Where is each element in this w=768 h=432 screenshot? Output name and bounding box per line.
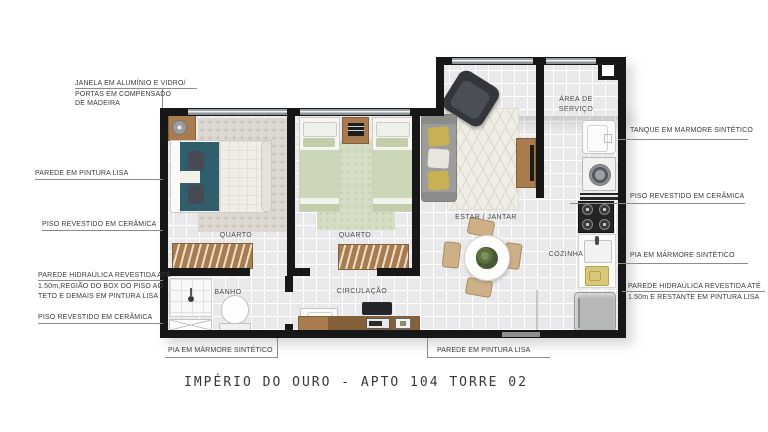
wall-left <box>160 108 168 338</box>
room-label-area-servico-2: SERVIÇO <box>546 106 606 114</box>
bedroom2-single-bed-right <box>372 117 413 212</box>
bedroom2-nightstand <box>342 117 369 144</box>
bedroom2-single-bed-left <box>299 117 340 212</box>
living-tv <box>530 145 534 181</box>
note-pia-right: PIA EM MÁRMORE SINTÉTICO <box>630 251 735 260</box>
wall-bottom <box>160 330 626 338</box>
wall-circulation-b <box>287 268 310 276</box>
note-piso-ceramica-left-2: PISO REVESTIDO EM CERÂMICA <box>38 313 152 322</box>
leader-piso-ceramica-left-2 <box>38 323 163 324</box>
window-bedroom2 <box>300 109 410 115</box>
wall-connector <box>436 57 444 116</box>
sofa-pillow-yellow-1 <box>427 126 450 147</box>
room-label-circulacao: CIRCULAÇÃO <box>319 288 405 296</box>
window-service <box>546 58 596 64</box>
kitchen-shelf <box>580 193 618 200</box>
note-janela-line3: DE MADEIRA <box>75 99 120 108</box>
leader-parede-pintura-left <box>35 179 163 180</box>
note-parede-pintura-bottom: PAREDE EM PINTURA LISA <box>437 346 530 355</box>
wall-bedroom-divider <box>287 108 295 276</box>
wall-circulation-c <box>377 268 420 276</box>
bed-pillow-top <box>187 150 204 170</box>
note-hidraulica-right-line2: 1.50m E RESTANTE EM PINTURA LISA <box>628 293 759 302</box>
leader-hidraulica-left <box>38 280 163 281</box>
bed-center-runner <box>180 171 200 183</box>
sofa-armrest-top <box>422 115 456 124</box>
sofa-pillow-yellow-2 <box>427 170 449 190</box>
note-parede-pintura-left: PAREDE EM PINTURA LISA <box>35 169 128 178</box>
floor-plan-page: QUARTO QUARTO BANHO CIRCULAÇÃO ESTAR / J… <box>0 0 768 432</box>
dining-chair-left <box>442 241 462 269</box>
bed-sham <box>303 138 335 147</box>
bedroom1-lamp <box>172 120 187 135</box>
table-plant <box>476 247 498 269</box>
leader-pia-bottom-h <box>165 357 277 358</box>
note-janela-line2: PORTAS EM COMPENSADO <box>75 90 171 99</box>
washing-machine <box>582 157 616 191</box>
note-hidraulica-left-line2: 1.50m,REGIÃO DO BOX DO PISO AO <box>38 282 163 291</box>
room-label-area-servico-1: ÁREA DE <box>546 96 606 104</box>
note-hidraulica-right-line1: PAREDE HIDRAÚLICA REVESTIDA ATÉ <box>628 282 761 291</box>
leader-piso-ceramica-right <box>570 203 745 204</box>
corner-column <box>598 61 618 80</box>
laundry-tank <box>582 120 616 154</box>
kitchen-counter-edge <box>536 290 538 330</box>
picture-frame <box>395 318 411 329</box>
bedroom1-double-bed <box>170 140 272 213</box>
wall-bath-right-upper <box>285 276 293 292</box>
room-label-banho: BANHO <box>200 289 256 297</box>
entry-door-bottom <box>502 332 540 337</box>
bed-sham <box>376 138 408 147</box>
tv-console <box>516 138 536 188</box>
toilet-bowl <box>221 295 249 324</box>
sofa-armrest-bottom <box>422 192 456 201</box>
plan-title: IMPÉRIO DO OURO - APTO 104 TORRE 02 <box>176 375 536 390</box>
wall-kitchen-divider <box>536 57 544 198</box>
microwave <box>366 318 390 329</box>
sofa-pillow-white <box>427 148 449 168</box>
fridge <box>574 292 616 332</box>
room-label-quarto1: QUARTO <box>200 232 272 240</box>
bed-pillow <box>303 122 337 137</box>
stove <box>578 201 614 233</box>
radio <box>348 123 364 136</box>
wall-right <box>618 57 626 338</box>
window-living <box>452 58 533 64</box>
shower-head-arm <box>190 288 192 297</box>
room-label-quarto2: QUARTO <box>319 232 391 240</box>
leader-pia-bottom-v <box>277 338 278 358</box>
leader-janela-h <box>75 88 197 89</box>
leader-parede-pintura-bottom-h <box>427 357 550 358</box>
bed-pillow-bottom <box>187 184 204 204</box>
note-hidraulica-left-line3: TETO E DEMAIS EM PINTURA LISA <box>38 292 158 301</box>
note-pia-bottom: PIA EM MÁRMORE SINTÉTICO <box>168 346 273 355</box>
cutting-board <box>585 266 609 286</box>
room-label-estar-jantar: ESTAR / JANTAR <box>436 214 536 222</box>
note-tanque-right: TANQUE EM MARMORE SINTÉTICO <box>630 126 753 135</box>
sofa <box>421 114 457 202</box>
room-label-cozinha: COZINHA <box>538 251 594 259</box>
bed-duvet-roll <box>261 141 272 212</box>
wall-circulation-a <box>160 268 250 276</box>
note-piso-ceramica-right: PISO REVESTIDO EM CERÂMICA <box>630 192 744 201</box>
bedroom1-wardrobe <box>172 243 253 269</box>
note-piso-ceramica-left-1: PISO REVESTIDO EM CERÂMICA <box>42 220 156 229</box>
leader-hidraulica-right <box>622 291 765 292</box>
note-hidraulica-left-line1: PAREDE HIDRAÚLICA REVESTIDA ATÉ <box>38 271 171 280</box>
bed-foot-roll <box>373 204 412 211</box>
leader-pia-right <box>618 263 748 264</box>
leader-tanque-right <box>618 139 748 140</box>
kitchen-counter <box>578 234 616 288</box>
window-bedroom1 <box>188 109 287 115</box>
bed-duvet <box>219 141 264 212</box>
living-rug <box>447 108 519 210</box>
wall-bath-right-lower <box>285 324 293 338</box>
bed-blanket <box>373 150 412 198</box>
note-janela-line1: JANELA EM ALUMÍNIO E VIDRO/ <box>75 79 186 88</box>
bedroom2-wardrobe <box>338 244 409 270</box>
bed-blanket <box>300 150 339 198</box>
kitchen-faucet <box>595 236 599 245</box>
leader-piso-ceramica-left-1 <box>42 230 163 231</box>
wall-bedroom2-living <box>412 108 420 276</box>
circulation-tv <box>362 302 392 315</box>
bed-foot-roll <box>300 204 339 211</box>
bed-pillow <box>376 122 410 137</box>
leader-parede-pintura-bottom-v <box>427 338 428 358</box>
